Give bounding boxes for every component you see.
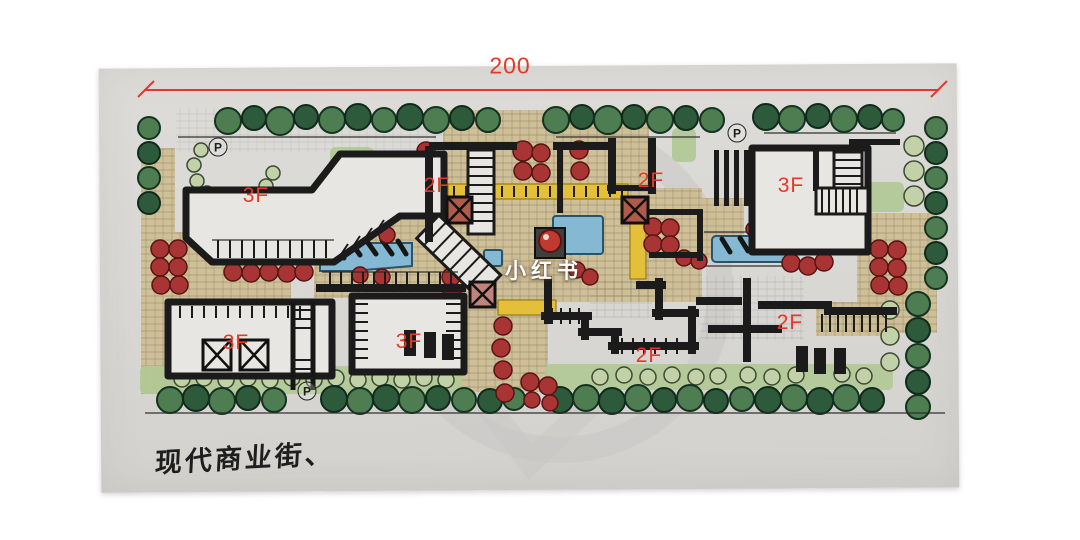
screenshot-root: 200 小红书 现代商业街、 3F2F2F3F3F3F2F2FPPP [0,0,1080,540]
building-bottom-mid-3f [320,272,464,372]
dimension-line [138,81,947,97]
site-plan-drawing [0,0,1080,540]
building-bottom-left-3f [168,302,332,376]
